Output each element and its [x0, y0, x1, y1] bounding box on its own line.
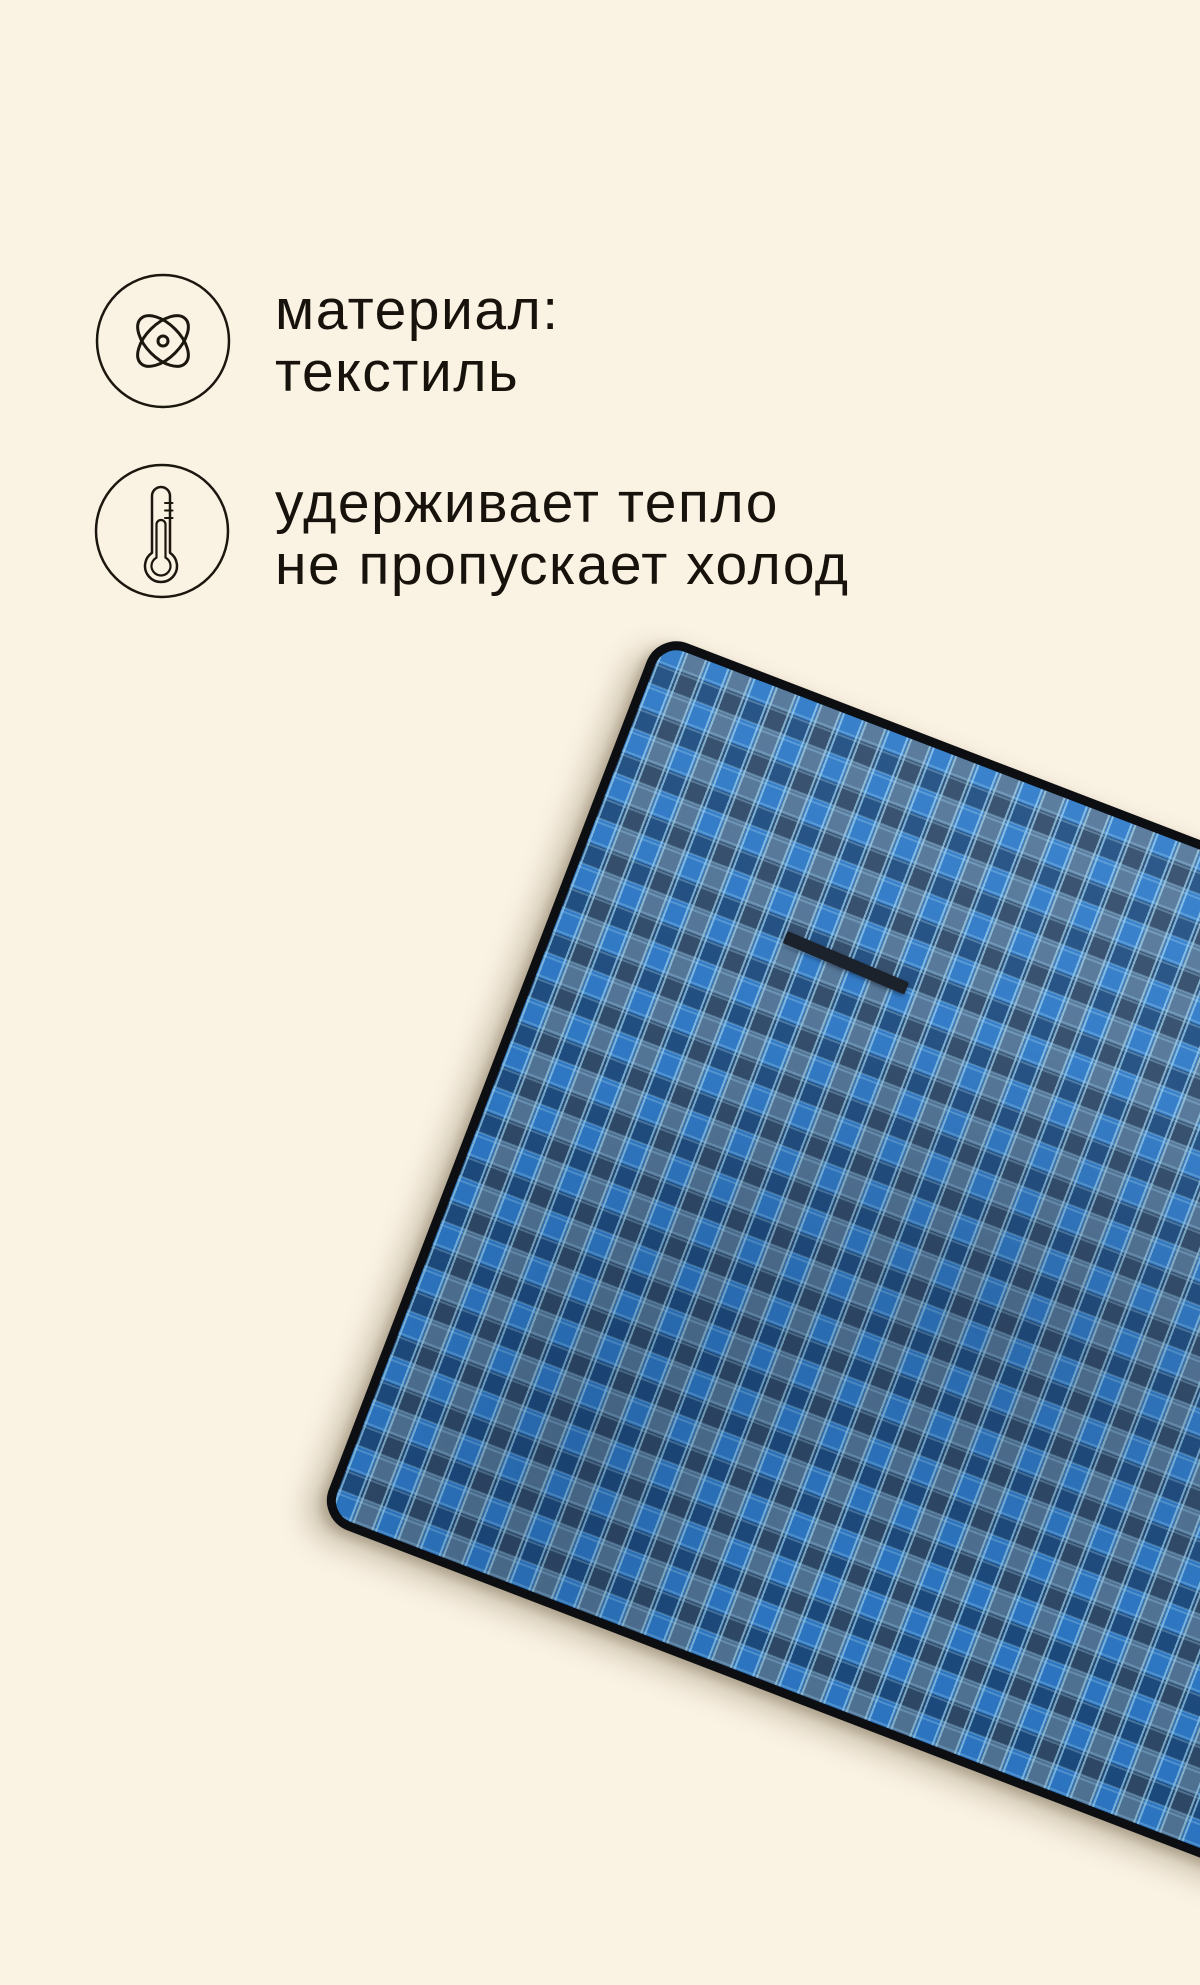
atom-icon-graphic: [95, 273, 231, 409]
feature-material-text: материал: текстиль: [275, 279, 560, 403]
feature-material-line-1: материал:: [275, 279, 560, 341]
carry-handle-strap: [783, 931, 910, 995]
atom-icon: [95, 273, 231, 409]
picnic-blanket-photo: [318, 632, 1200, 1985]
feature-insulation-line-2: не пропускает холод: [275, 534, 850, 596]
feature-material-line-2: текстиль: [275, 341, 560, 403]
feature-insulation-line-1: удерживает тепло: [275, 472, 850, 534]
thermometer-icon: [94, 463, 230, 599]
feature-insulation-text: удерживает тепло не пропускает холод: [275, 472, 850, 596]
thermometer-icon-graphic: [94, 463, 230, 599]
